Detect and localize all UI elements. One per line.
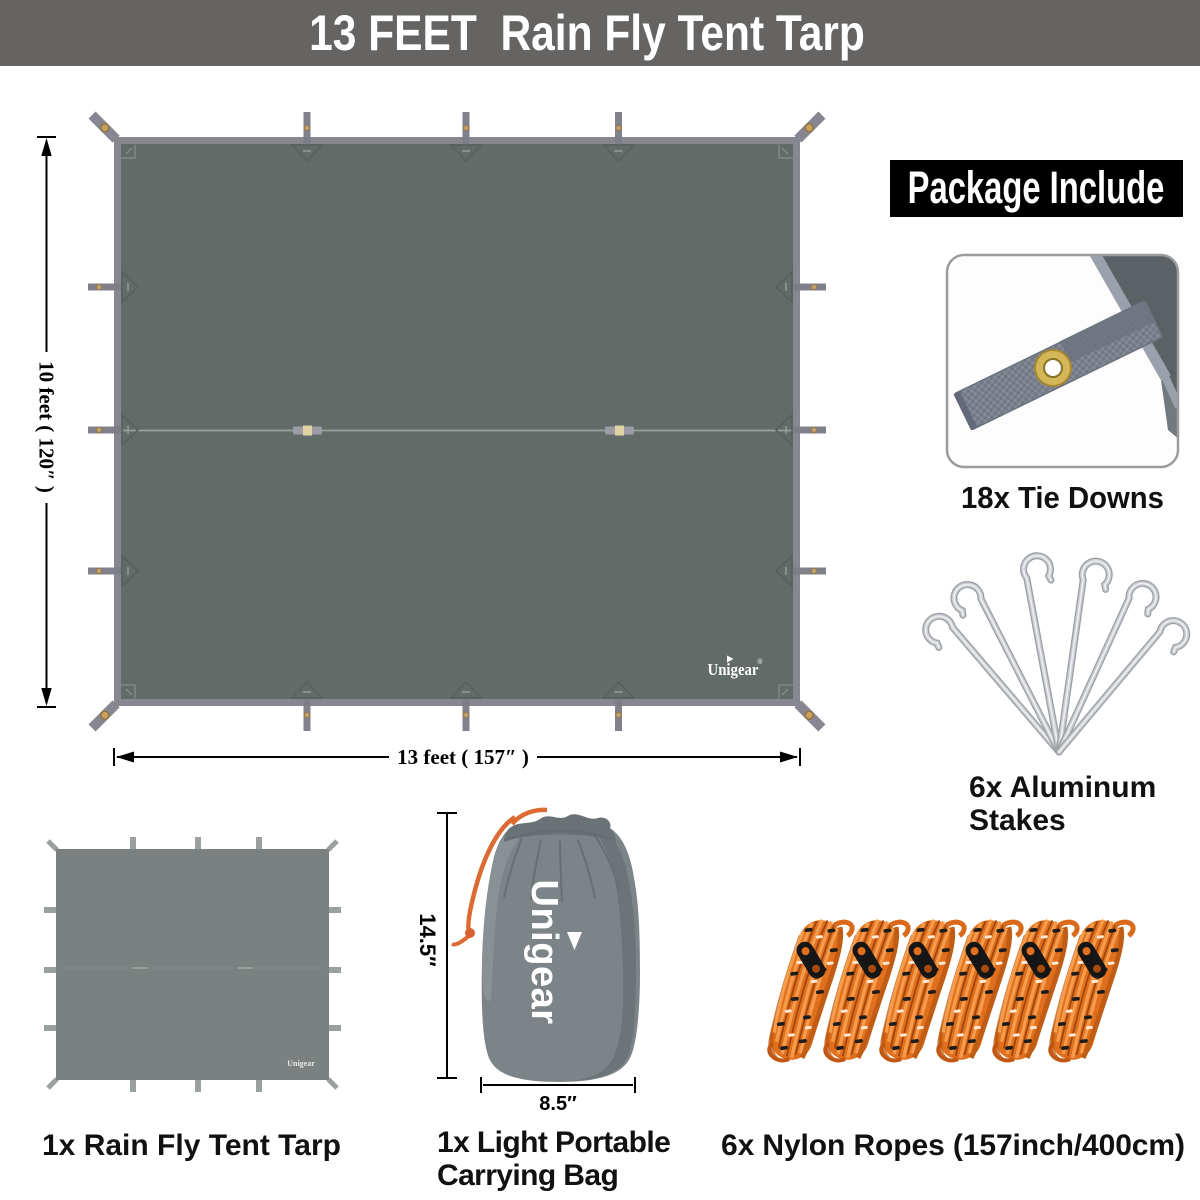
svg-text:Unigear: Unigear (708, 660, 759, 679)
svg-text:14.5″: 14.5″ (415, 913, 440, 967)
svg-text:10 feet ( 120″ ): 10 feet ( 120″ ) (35, 361, 59, 493)
svg-text:8.5″: 8.5″ (539, 1093, 577, 1115)
svg-text:13 feet ( 157″ ): 13 feet ( 157″ ) (397, 745, 529, 769)
svg-text:®: ® (757, 658, 763, 666)
svg-text:Unigear: Unigear (523, 880, 565, 1025)
svg-text:Unigear: Unigear (287, 1059, 315, 1068)
